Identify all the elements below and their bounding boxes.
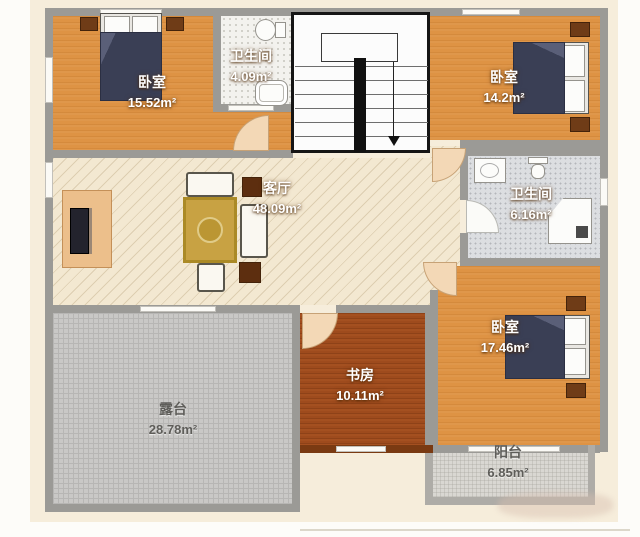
nightstand — [566, 383, 586, 398]
room-area: 14.2m² — [483, 88, 524, 108]
room-name: 卫生间 — [230, 46, 272, 67]
tv — [70, 208, 89, 254]
room-label-bathroom-top: 卫生间 4.09m² — [230, 46, 272, 87]
room-label-bedroom-right: 卧室 17.46m² — [481, 317, 529, 358]
wall-bedroom2-bath2 — [460, 140, 608, 156]
room-area: 10.11m² — [336, 386, 384, 406]
armchair — [197, 263, 225, 292]
room-name: 卧室 — [481, 317, 529, 338]
toilet-tank — [275, 22, 286, 38]
wall-balcony-left — [425, 445, 433, 505]
wall-left-upper — [45, 8, 53, 313]
wall-study-right — [425, 313, 433, 453]
pillow — [562, 318, 586, 345]
rug-medallion — [197, 217, 223, 243]
pillow — [562, 348, 586, 375]
room-label-terrace: 露台 28.78m² — [149, 399, 197, 440]
wall-bath2-left-lower — [460, 233, 468, 258]
wall-living-top — [53, 150, 293, 158]
staircase-guide-line — [393, 62, 394, 136]
pillow — [564, 80, 585, 112]
staircase-down-arrow-icon — [388, 136, 400, 146]
room-area: 4.09m² — [230, 67, 272, 87]
room-label-bedroom-top-left: 卧室 15.52m² — [128, 72, 176, 113]
room-label-study: 书房 10.11m² — [336, 365, 384, 406]
floor-plan: 卧室 15.52m² 卫生间 4.09m² 卧室 14.2m² 客厅 48.09… — [0, 0, 640, 537]
wall-right-outer — [600, 8, 608, 452]
window-bedroom1-left — [45, 57, 53, 103]
room-label-bedroom-top-right: 卧室 14.2m² — [483, 67, 524, 108]
nightstand — [570, 22, 590, 37]
room-area: 15.52m² — [128, 93, 176, 113]
staircase-center-rail — [354, 58, 366, 152]
nightstand — [566, 296, 586, 311]
room-label-bathroom-mid: 卫生间 6.16m² — [510, 184, 552, 225]
room-label-living: 客厅 48.09m² — [253, 178, 301, 219]
pillow — [564, 45, 585, 77]
toilet-tank — [528, 157, 548, 164]
sofa-loveseat — [186, 172, 234, 197]
room-area: 6.85m² — [487, 463, 528, 483]
nightstand — [80, 17, 98, 31]
wall-terrace-left — [45, 313, 53, 512]
window-living-left — [45, 162, 53, 198]
nightstand — [166, 17, 184, 31]
watermark — [498, 492, 613, 518]
room-name: 客厅 — [253, 178, 301, 199]
room-label-balcony: 阳台 6.85m² — [487, 442, 528, 483]
threshold-terrace — [140, 306, 216, 312]
room-area: 48.09m² — [253, 199, 301, 219]
page-bottom-line — [300, 529, 630, 531]
wall-terrace-right — [292, 313, 300, 512]
shower-drain — [576, 226, 588, 238]
window-study-bottom — [336, 446, 386, 452]
toilet — [255, 19, 276, 41]
wall-study-top — [336, 305, 433, 313]
toilet — [531, 164, 545, 179]
room-name: 卫生间 — [510, 184, 552, 205]
wall-bath-top-left — [213, 8, 221, 112]
window-bedroom2-top — [462, 9, 520, 15]
room-area: 6.16m² — [510, 205, 552, 225]
room-name: 卧室 — [128, 72, 176, 93]
sink-basin — [480, 163, 499, 178]
room-name: 卧室 — [483, 67, 524, 88]
room-name: 阳台 — [487, 442, 528, 463]
room-area: 28.78m² — [149, 420, 197, 440]
side-table — [239, 262, 261, 283]
room-name: 露台 — [149, 399, 197, 420]
wall-bath2-bottom — [460, 258, 608, 266]
window-bath2-right — [600, 178, 608, 206]
room-area: 17.46m² — [481, 338, 529, 358]
nightstand — [570, 117, 590, 132]
room-name: 书房 — [336, 365, 384, 386]
wall-terrace-bottom — [45, 504, 300, 512]
